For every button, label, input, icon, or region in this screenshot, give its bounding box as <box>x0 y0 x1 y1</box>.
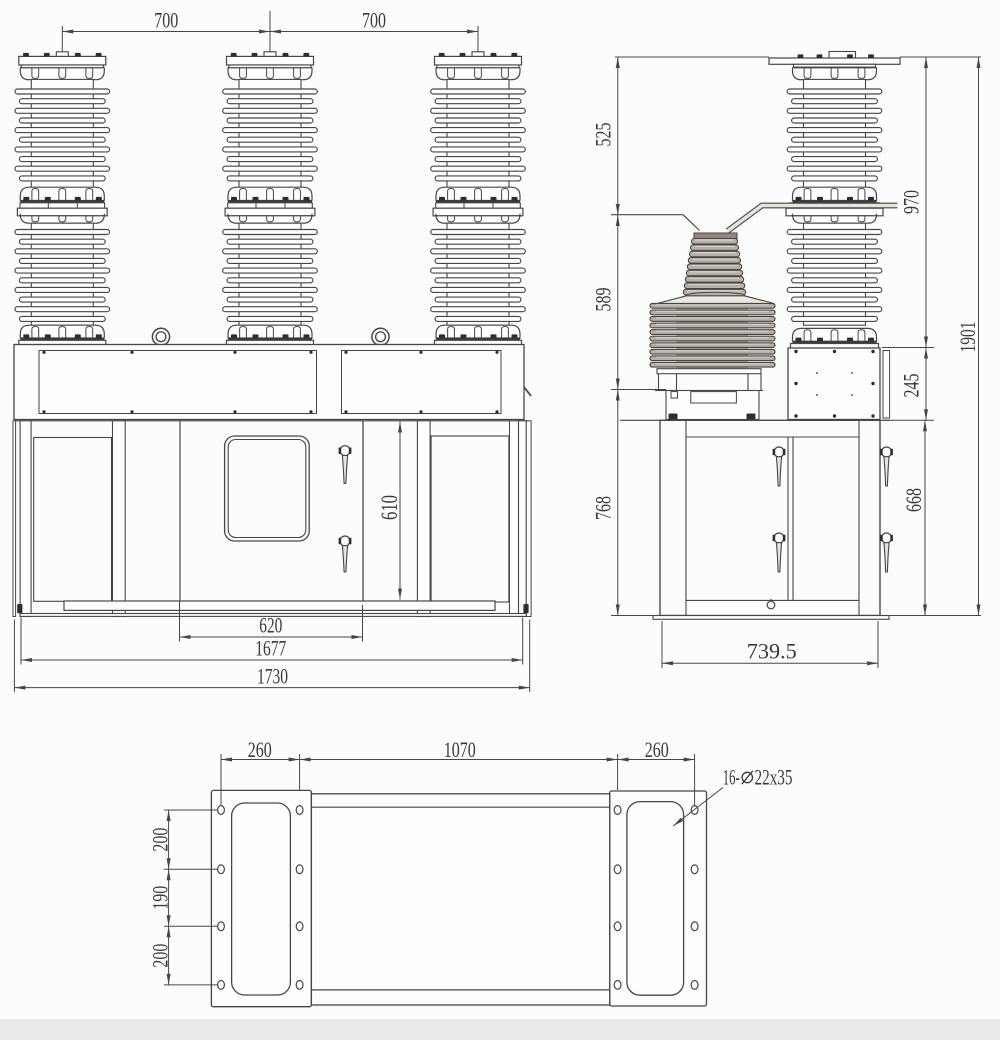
svg-text:739.5: 739.5 <box>747 639 797 664</box>
svg-text:1901: 1901 <box>955 322 980 353</box>
svg-text:260: 260 <box>645 737 669 762</box>
svg-text:260: 260 <box>248 737 272 762</box>
svg-text:620: 620 <box>259 613 282 638</box>
svg-text:1730: 1730 <box>257 663 288 688</box>
svg-text:700: 700 <box>362 8 386 33</box>
svg-text:700: 700 <box>154 8 178 33</box>
svg-text:1070: 1070 <box>444 737 476 762</box>
svg-text:668: 668 <box>901 488 926 512</box>
svg-text:22x35: 22x35 <box>755 765 793 790</box>
svg-text:1677: 1677 <box>255 636 286 661</box>
svg-text:190: 190 <box>148 886 173 910</box>
svg-text:200: 200 <box>148 944 173 968</box>
svg-text:768: 768 <box>591 496 616 520</box>
svg-text:245: 245 <box>899 374 924 398</box>
svg-text:525: 525 <box>591 123 616 147</box>
svg-text:16-: 16- <box>723 765 740 790</box>
svg-text:200: 200 <box>148 828 173 852</box>
svg-text:589: 589 <box>591 288 616 312</box>
svg-text:610: 610 <box>377 495 402 520</box>
svg-text:970: 970 <box>899 190 924 214</box>
